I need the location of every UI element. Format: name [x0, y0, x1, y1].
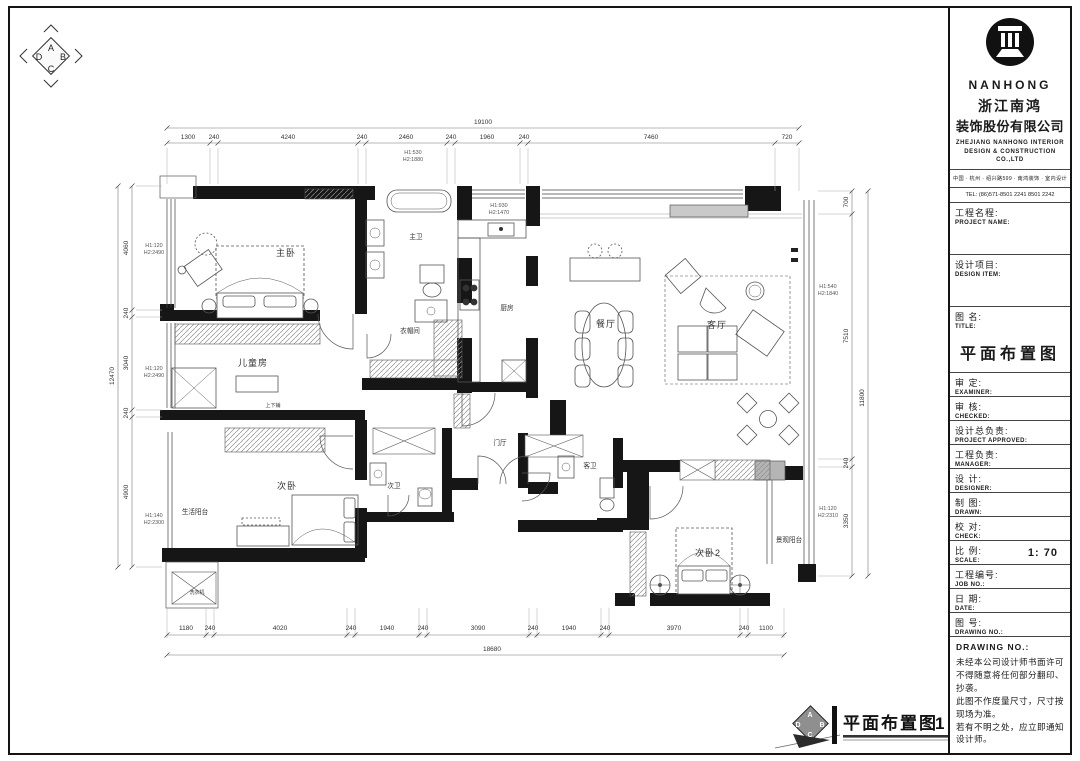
annotation: H2:1840 [818, 291, 838, 297]
room-label-bedroom-2: 次卧 [277, 480, 297, 491]
field-designer: 设 计: DESIGNER: [950, 468, 1070, 492]
room-label-cloakroom: 衣帽间 [400, 326, 420, 335]
field-label-cn: 审 定: [955, 376, 1065, 389]
field-design-item: 设计项目: DESIGN ITEM: [950, 254, 1070, 306]
dim-label: 240 [528, 625, 539, 632]
dim-label: 240 [209, 134, 220, 141]
orientation-letter-c: C [48, 64, 55, 74]
field-label-cn: 设 计: [955, 472, 1065, 485]
dim-label: 240 [205, 625, 216, 632]
field-examiner: 审 定: EXAMINER: [950, 372, 1070, 396]
company-name-cn-1: 浙江南鸿 [954, 96, 1066, 116]
dim-label: 7460 [644, 134, 659, 141]
dim-label: 2460 [399, 134, 414, 141]
room-label-master-bath: 主卫 [409, 232, 423, 241]
orientation-letter-d: D [36, 52, 43, 62]
field-label-cn: 日 期: [955, 592, 1065, 605]
field-label-en: TITLE: [955, 324, 1065, 330]
field-drawn: 制 图: DRAWN: [950, 492, 1070, 516]
field-drawing-no: 图 号: DRAWING NO.: [950, 612, 1070, 636]
room-label-kitchen: 厨房 [500, 303, 514, 312]
drawing-title-value: 平面布置图 [955, 340, 1065, 364]
field-checked: 审 核: CHECKED: [950, 396, 1070, 420]
dim-label: 4900 [123, 484, 130, 499]
dim-label: 240 [123, 307, 130, 318]
title-block: NANHONG 浙江南鸿 装饰股份有限公司 ZHEJIANG NANHONG I… [948, 8, 1070, 753]
dim-label: 19100 [474, 119, 492, 126]
field-project-approved: 设计总负责: PROJECT APPROVED: [950, 420, 1070, 444]
field-title: 图 名: TITLE: 平面布置图 [950, 306, 1070, 372]
company-address: 中国 · 杭州 · 绍兴路599 · 南鸿装饰 · 室内设计 [950, 169, 1070, 187]
room-label-dining: 餐厅 [596, 318, 616, 329]
dim-label: 240 [519, 134, 530, 141]
scale-value: 1: 70 [1028, 547, 1058, 559]
orientation-symbol: A B C D [20, 25, 82, 87]
field-label-cn: 工程负责: [955, 448, 1065, 461]
dim-label: 1180 [179, 625, 193, 632]
room-label-bedroom-3: 次卧2 [695, 547, 721, 558]
dim-label: 1100 [759, 625, 773, 632]
annotation: H1:930 [490, 203, 507, 209]
dim-label: 240 [123, 407, 130, 418]
footer-letter-a: A [807, 712, 812, 719]
room-label-children-room: 儿童房 [238, 357, 268, 368]
room-label-bath-2: 次卫 [387, 481, 401, 490]
footer-letter-c: C [807, 732, 812, 739]
note-line: 此图不作度量尺寸，尺寸按现场为准。 [956, 695, 1064, 721]
dim-label: 12470 [109, 367, 116, 385]
field-label-cn: 图 号: [955, 616, 1065, 629]
dim-label: 3090 [471, 625, 486, 632]
field-label-cn: 工程编号: [955, 568, 1065, 581]
dim-label: 1940 [380, 625, 395, 632]
field-label-cn: 图 名: [955, 310, 1065, 323]
orientation-letter-b: B [60, 52, 66, 62]
field-project-name: 工程名程: PROJECT NAME: [950, 202, 1070, 254]
annotation: H1:540 [819, 284, 836, 290]
field-date: 日 期: DATE: [950, 588, 1070, 612]
dim-label: 240 [600, 625, 611, 632]
dim-label: 240 [843, 457, 850, 468]
annotation: H1:140 [145, 513, 162, 519]
room-label-living: 客厅 [707, 319, 727, 330]
copyright-notes: DRAWING NO.: 未经本公司设计师书面许可不得随意将任何部分翻印、抄袭。… [950, 636, 1070, 753]
field-job-no: 工程编号: JOB NO.: [950, 564, 1070, 588]
annotation: H2:1470 [489, 210, 509, 216]
dim-label: 1960 [480, 134, 495, 141]
annotation: H1:120 [145, 243, 162, 249]
field-label-cn: 校 对: [955, 520, 1065, 533]
dim-label: 720 [782, 134, 793, 141]
company-name-cn-2: 装饰股份有限公司 [954, 116, 1066, 135]
nanhong-column-logo-icon [984, 16, 1036, 68]
annotation: H2:2300 [144, 520, 164, 526]
company-name-en: ZHEJIANG NANHONG INTERIOR DESIGN & CONST… [954, 139, 1066, 165]
walls [160, 186, 816, 606]
room-label-bunk-bed: 上下铺 [265, 402, 280, 409]
dim-label: 3350 [843, 513, 850, 528]
dim-label: 240 [446, 134, 457, 141]
annotation: H2:2490 [144, 250, 164, 256]
room-label-master-bedroom: 主卧 [276, 247, 296, 258]
dim-label: 3040 [123, 355, 130, 370]
dim-label: 7510 [843, 328, 850, 343]
floor-plan: A B C D [10, 8, 965, 757]
footer-letter-b: B [819, 722, 824, 729]
dim-label: 240 [418, 625, 429, 632]
dim-label: 240 [346, 625, 357, 632]
dim-label: 1300 [181, 134, 196, 141]
annotation: H2:2490 [144, 373, 164, 379]
furniture [172, 190, 799, 595]
room-label-service-balcony: 生活阳台 [182, 507, 209, 516]
annotation: H1:530 [404, 150, 421, 156]
sheet-frame: A B C D [8, 6, 1072, 755]
drawing-title: 平面布置图 [843, 713, 938, 733]
dim-label: 4060 [123, 240, 130, 255]
note-line: 若有不明之处，应立即通知设计师。 [956, 721, 1064, 747]
annotation: H1:120 [145, 366, 162, 372]
room-label-view-balcony: 景观阳台 [776, 535, 803, 544]
room-label-guest-bath: 客卫 [583, 461, 597, 470]
closets [172, 189, 770, 604]
field-label-cn: 设计项目: [955, 258, 1065, 271]
note-line: 未经本公司设计师书面许可不得随意将任何部分翻印、抄袭。 [956, 656, 1064, 695]
dim-label: 240 [357, 134, 368, 141]
room-label-foyer: 门厅 [493, 438, 507, 447]
dim-label: 4240 [281, 134, 296, 141]
orientation-letter-a: A [48, 43, 54, 53]
footer-letter-d: D [795, 722, 800, 729]
annotation: H1:120 [819, 506, 836, 512]
dim-label: 4020 [273, 625, 288, 632]
field-scale: 比 例: SCALE: 1: 70 [950, 540, 1070, 564]
dim-label: 1940 [562, 625, 577, 632]
field-label-cn: 制 图: [955, 496, 1065, 509]
dim-label: 700 [843, 196, 850, 207]
company-header: NANHONG 浙江南鸿 装饰股份有限公司 ZHEJIANG NANHONG I… [950, 8, 1070, 169]
room-label-washing-machine: 洗衣机 [189, 589, 204, 596]
dim-label: 18680 [483, 646, 501, 653]
annotation: H2:1880 [403, 157, 423, 163]
company-tel: TEL: (86)571-8501 2241 8501 2242 [950, 187, 1070, 202]
field-label-cn: 工程名程: [955, 206, 1065, 219]
field-manager: 工程负责: MANAGER: [950, 444, 1070, 468]
field-label-en: DRAWING NO.: [955, 630, 1065, 636]
field-label-en: DESIGN ITEM: [955, 272, 1065, 278]
drawing-title-bar: A B C D 平面布置图 1 : 70 [775, 706, 965, 748]
field-label-cn: 设计总负责: [955, 424, 1065, 437]
dim-label: 3970 [667, 625, 682, 632]
notes-header: DRAWING NO.: [956, 642, 1064, 652]
dim-label: 240 [739, 625, 750, 632]
drawing-sheet: A B C D [0, 0, 1080, 761]
brand-wordmark: NANHONG [954, 78, 1066, 92]
field-label-cn: 审 核: [955, 400, 1065, 413]
field-label-en: PROJECT NAME: [955, 220, 1065, 226]
annotation: H2:2310 [818, 513, 838, 519]
dim-label: 11800 [859, 389, 866, 407]
field-check: 校 对: CHECK: [950, 516, 1070, 540]
